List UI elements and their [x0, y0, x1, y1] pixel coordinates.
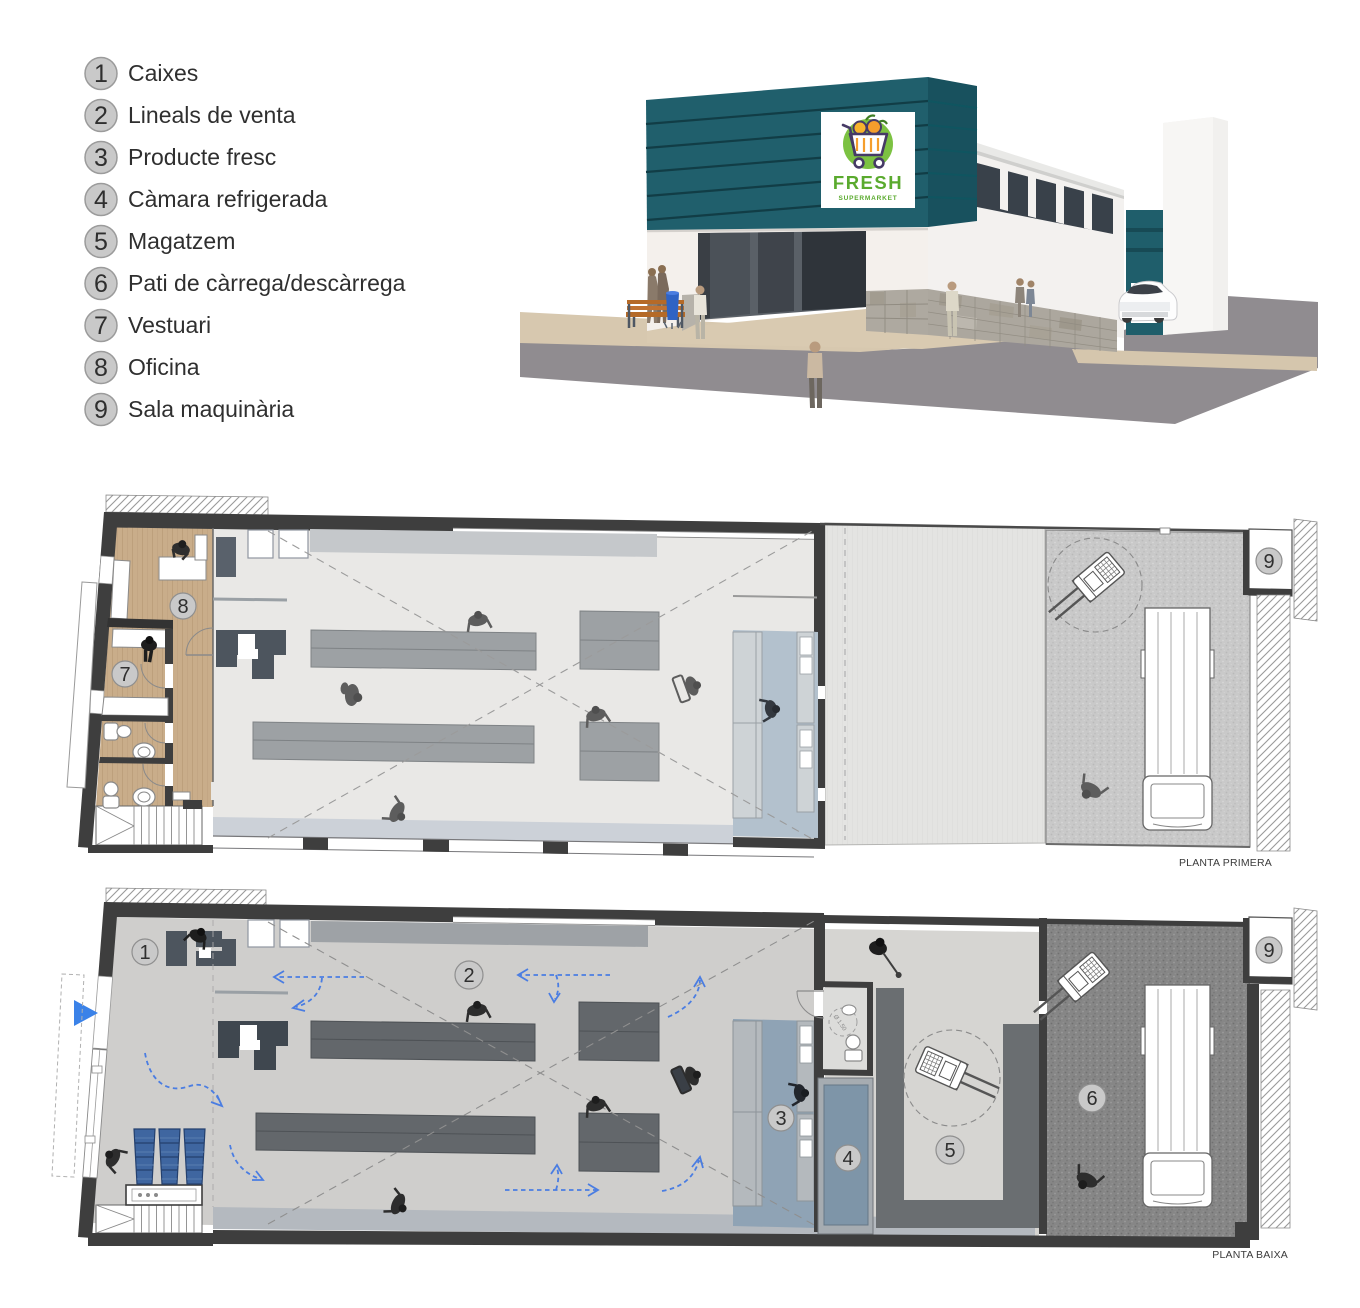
svg-text:Magatzem: Magatzem	[128, 228, 235, 254]
svg-text:PLANTA BAIXA: PLANTA BAIXA	[1212, 1249, 1288, 1261]
svg-text:Oficina: Oficina	[128, 354, 200, 380]
svg-text:Caixes: Caixes	[128, 60, 198, 86]
svg-text:9: 9	[1263, 551, 1274, 573]
svg-text:2: 2	[94, 102, 108, 130]
svg-text:1: 1	[139, 942, 150, 964]
svg-text:8: 8	[94, 354, 108, 382]
svg-text:9: 9	[1263, 940, 1274, 962]
svg-text:6: 6	[94, 270, 108, 298]
svg-text:3: 3	[775, 1108, 786, 1130]
svg-text:7: 7	[119, 664, 130, 686]
svg-text:5: 5	[944, 1140, 955, 1162]
svg-text:SUPERMARKET: SUPERMARKET	[839, 195, 898, 202]
svg-text:PLANTA PRIMERA: PLANTA PRIMERA	[1179, 857, 1272, 869]
svg-text:Càmara refrigerada: Càmara refrigerada	[128, 186, 328, 212]
svg-text:Vestuari: Vestuari	[128, 312, 211, 338]
svg-text:3: 3	[94, 144, 108, 172]
svg-text:7: 7	[94, 312, 108, 340]
svg-text:4: 4	[842, 1148, 853, 1170]
svg-text:FRESH: FRESH	[833, 172, 903, 193]
svg-text:Producte fresc: Producte fresc	[128, 144, 276, 170]
svg-text:6: 6	[1086, 1088, 1097, 1110]
svg-text:Pati de càrrega/descàrrega: Pati de càrrega/descàrrega	[128, 270, 406, 296]
svg-text:9: 9	[94, 396, 108, 424]
svg-text:Sala maquinària: Sala maquinària	[128, 396, 294, 422]
svg-text:1: 1	[94, 60, 108, 88]
svg-text:5: 5	[94, 228, 108, 256]
svg-text:Lineals de venta: Lineals de venta	[128, 102, 296, 128]
svg-text:4: 4	[94, 186, 108, 214]
svg-text:8: 8	[177, 596, 188, 618]
svg-text:2: 2	[463, 965, 474, 987]
